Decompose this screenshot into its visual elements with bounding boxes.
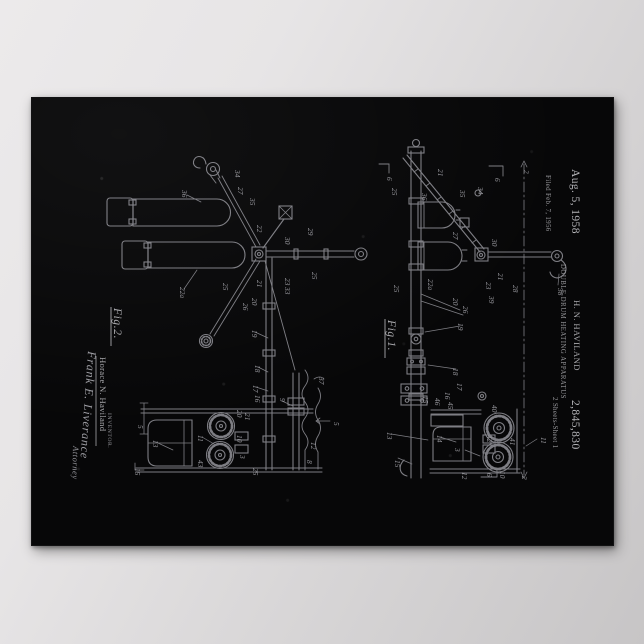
ref-numeral: 22 <box>255 225 264 233</box>
ref-numeral: 17 <box>455 383 464 391</box>
fig2-wall <box>293 373 299 470</box>
fig2-hook <box>193 157 206 168</box>
ref-numeral: 15 <box>393 460 402 468</box>
ref-numeral: 10 <box>235 435 244 443</box>
ref-numeral: 22a <box>178 287 187 298</box>
ref-numeral: 2 <box>520 476 529 480</box>
ref-numeral: 30 <box>490 238 499 247</box>
fig2-wheel-rear <box>207 442 234 469</box>
ref-numeral: 2 <box>522 170 531 174</box>
fig1-mast <box>411 151 421 478</box>
ref-numeral: 10 <box>498 471 507 479</box>
ref-numeral: 25 <box>251 468 260 476</box>
ref-numeral: 12 <box>460 472 469 480</box>
fig2-hub <box>255 250 263 258</box>
ref-numeral: 26 <box>461 306 470 314</box>
ref-numeral: 21 <box>255 280 264 287</box>
patent-header: Aug. 5, 1958 H. N. HAVILAND 2,845,830 DO… <box>544 169 582 450</box>
ref-numeral: 25 <box>310 272 319 280</box>
fig1-cab <box>433 427 471 461</box>
fig2-dim-5-arrow <box>316 418 330 424</box>
ref-numeral: 22a <box>426 279 435 290</box>
ref-numeral: 25 <box>221 283 230 291</box>
ref-numeral: 35 <box>248 197 257 206</box>
ref-numeral: 19 <box>456 323 465 331</box>
fig2-ref-numerals: 34273536223029252322a2521202633191817169… <box>133 169 341 476</box>
fig1-label: Fig.1. <box>385 319 397 351</box>
ref-numeral: 13 <box>151 440 160 448</box>
patent-poster: 34273536223029252322a2521202633191817169… <box>31 97 614 546</box>
ref-numeral: 33 <box>283 286 292 295</box>
ref-numeral: 40 <box>490 405 499 413</box>
ref-numeral: 25 <box>392 285 401 293</box>
fig2-drum-lower <box>148 242 245 268</box>
ref-numeral: 27 <box>236 187 245 195</box>
fig2-label: Fig.2. <box>111 307 123 339</box>
ref-numeral: 14 <box>435 435 444 443</box>
fig1-wheel-lower <box>483 442 513 472</box>
ref-numeral: 21 <box>243 413 252 420</box>
attorney-caption: Attorney <box>70 445 80 480</box>
ref-numeral: 8 <box>305 460 314 464</box>
ref-numeral: 3 <box>453 447 462 452</box>
fig2-frame <box>266 258 272 470</box>
patent-filed-date: Filed Feb. 7, 1956 <box>544 175 552 232</box>
ref-numeral: 21 <box>436 169 445 176</box>
fig1-roller <box>478 392 486 400</box>
photo-stage: 34273536223029252322a2521202633191817169… <box>0 0 644 644</box>
patent-date: Aug. 5, 1958 <box>569 169 581 234</box>
fig2-eye-ring <box>355 248 367 260</box>
fig1-drawing <box>379 140 566 479</box>
ref-numeral: 11 <box>539 437 548 444</box>
ref-numeral: 12 <box>309 442 318 450</box>
fig2-wheel-front <box>208 413 235 440</box>
ref-numeral: 20 <box>250 298 259 306</box>
ref-numeral: 18 <box>451 368 460 376</box>
ref-numeral: 17 <box>251 385 260 393</box>
ref-numeral: 23 <box>484 282 493 290</box>
ref-numeral: 18 <box>253 365 262 373</box>
ref-numeral: 42 <box>485 435 494 443</box>
fig1-mast-eyelet <box>413 140 420 147</box>
fig2-dim-5-bracket <box>140 403 148 434</box>
inventor-name: Horace N. Haviland <box>98 357 108 432</box>
ref-numeral: 20 <box>451 298 460 306</box>
ref-numeral: 27 <box>451 232 460 240</box>
patent-sheet-artwork: 34273536223029252322a2521202633191817169… <box>32 98 613 545</box>
fig2-drawing <box>107 157 367 472</box>
ref-numeral: 26 <box>241 303 250 311</box>
ref-numeral: 19 <box>250 330 259 338</box>
ref-numeral: 11 <box>196 435 205 442</box>
ref-numeral: 15 <box>133 468 142 476</box>
patent-number: 2,845,830 <box>569 400 581 450</box>
fig1-hood <box>431 415 463 426</box>
fig1-ref-numerals: 6253621353462273022a25212328393820261918… <box>385 169 565 480</box>
ref-numeral: 30 <box>283 236 292 245</box>
ref-numeral: 37 <box>317 376 326 385</box>
fig1-mast-pulley <box>411 334 421 344</box>
ref-numeral: 34 <box>233 169 242 178</box>
ref-numeral: 46 <box>433 398 442 406</box>
fig1-hub <box>477 251 485 259</box>
ref-numeral: 20 <box>235 410 244 418</box>
ref-numeral: 34 <box>476 186 485 195</box>
ref-numeral: 29 <box>306 228 315 236</box>
ref-numeral: 39 <box>487 295 496 304</box>
ref-numeral: 5 <box>136 425 145 429</box>
fig1-drum-lower <box>418 242 462 270</box>
ref-numeral: 6 <box>485 473 494 477</box>
ref-numeral: 5 <box>332 422 341 426</box>
fig2-drum-upper <box>133 199 231 226</box>
ref-numeral: 35 <box>458 189 467 198</box>
ref-numeral: 15 <box>421 396 430 404</box>
ref-numeral: 6 <box>385 177 394 181</box>
ref-numeral: 9 <box>278 398 287 402</box>
patent-inventor-name: H. N. HAVILAND <box>572 300 582 371</box>
ref-numeral: 25 <box>390 188 399 196</box>
ref-numeral: 13 <box>385 432 394 440</box>
patent-sheet-count: 2 Sheets-Sheet 1 <box>551 397 559 449</box>
ref-numeral: 16 <box>443 392 452 400</box>
ref-numeral: 28 <box>511 285 520 293</box>
ref-numeral: 21 <box>496 273 505 280</box>
ref-numeral: 36 <box>180 189 189 198</box>
ref-numeral: 16 <box>253 395 262 403</box>
patent-title: DOUBLE DRUM HEATING APPARATUS <box>559 264 566 399</box>
ref-numeral: 43 <box>196 460 205 468</box>
ref-numeral: 41 <box>508 438 517 445</box>
signature-block: INVENTOR. Horace N. Haviland Frank E. Li… <box>70 350 112 480</box>
ref-numeral: 23 <box>283 278 292 286</box>
ref-numeral: 6 <box>493 178 502 182</box>
ref-numeral: 36 <box>420 192 429 201</box>
ref-numeral: 3 <box>238 454 247 459</box>
ref-numeral: 45 <box>446 402 455 410</box>
